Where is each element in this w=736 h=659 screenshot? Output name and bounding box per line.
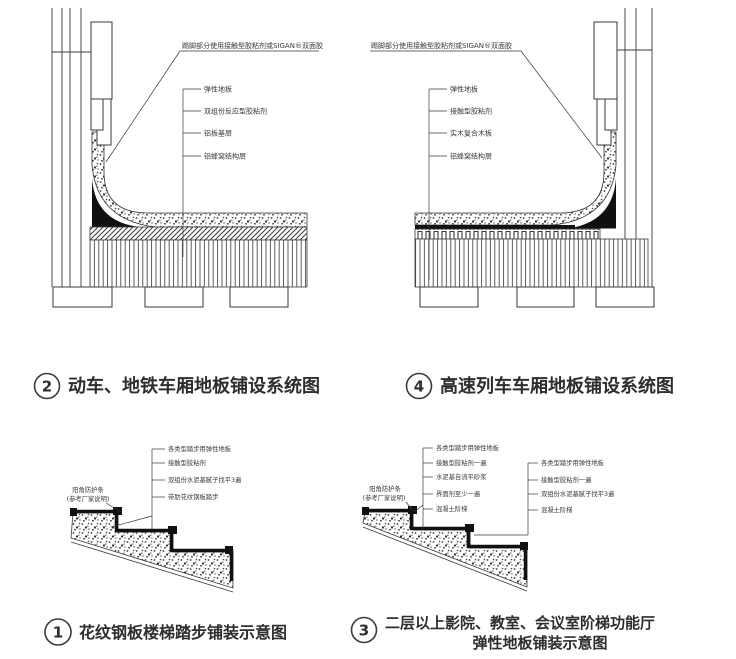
skirting-board-upper	[594, 22, 617, 99]
support-blocks	[53, 287, 288, 307]
nosing-cap	[520, 542, 528, 550]
layer-label: 弹性地板	[204, 85, 232, 94]
wall-panel-lines	[52, 8, 91, 287]
metro-floor-system-diagram: 踢脚部分使用接触型胶粘剂或SIGAN®双面胶 弹性地板 双组份反应型胶粘剂 铝板…	[52, 8, 323, 307]
skirting-note: 踢脚部分使用接触型胶粘剂或SIGAN®双面胶	[371, 41, 512, 50]
nosing-cap	[225, 546, 233, 554]
skirting-board-lower-inner	[91, 99, 103, 130]
layer-label-leaders-left	[414, 448, 433, 529]
layer-label: 铝蜂窝结构层	[450, 152, 492, 161]
skirting-board-upper	[91, 22, 112, 99]
title-text-line2: 弹性地板铺装示意图	[472, 634, 607, 652]
layer-label: 双组份水泥基腻子找平3遍	[541, 489, 615, 498]
skirting-boards	[91, 22, 112, 145]
honeycomb-structure-layer	[90, 240, 307, 287]
layer-label: 混凝土阶梯	[436, 504, 467, 513]
support-block	[230, 287, 288, 307]
elastic-floor-cove-layer	[415, 132, 616, 225]
layer-label: 铝板基层	[204, 129, 232, 138]
layer-label: 各类型踏步用弹性地板	[168, 444, 232, 453]
title-number: 2	[42, 378, 52, 396]
support-blocks	[420, 287, 654, 307]
title-text: 动车、地铁车厢地板铺设系统图	[68, 375, 320, 397]
elastic-floor-cove-layer	[92, 132, 307, 227]
layer-label: 弹性地板	[450, 85, 478, 94]
title-text: 花纹钢板楼梯踏步铺装示意图	[79, 623, 287, 642]
support-block	[517, 287, 574, 307]
skirting-board-lower-inner	[605, 99, 617, 130]
support-block	[145, 287, 203, 307]
engineered-wood-layer	[415, 229, 600, 239]
diagram-1-title: 1 花纹钢板楼梯踏步铺装示意图	[45, 619, 287, 645]
layer-label: 水泥基自流平砂浆	[436, 472, 487, 481]
title-number: 4	[414, 378, 424, 396]
layer-label: 双组份水泥基腻子找平3遍	[168, 475, 242, 484]
title-number: 3	[359, 622, 369, 640]
hst-floor-system-diagram: 踢脚部分使用接触型胶粘剂或SIGAN®双面胶 弹性地板 接触型胶粘剂 实木复合木…	[370, 8, 654, 307]
corner-strip-note: (参考厂家说明)	[363, 493, 406, 502]
nosing-cap	[70, 508, 77, 516]
support-block	[420, 287, 478, 307]
corner-strip-note: (参考厂家说明)	[67, 494, 110, 503]
nosing-cap	[362, 507, 369, 515]
title-number: 1	[53, 624, 63, 642]
skirting-note-leader	[370, 51, 602, 158]
layer-label: 接触型胶粘剂	[168, 458, 206, 467]
layer-label: 各类型踏步用弹性地板	[436, 443, 500, 452]
skirting-note: 踢脚部分使用接触型胶粘剂或SIGAN®双面胶	[182, 41, 323, 50]
corner-strip-label: 阳角防护条	[72, 485, 104, 494]
concrete-stair-elastic-floor-diagram: 阳角防护条 (参考厂家说明) 各类型踏步用弹性地板 接触型胶粘剂一遍 水泥基自流…	[362, 443, 615, 591]
layer-label: 界面剂至少一遍	[436, 489, 481, 498]
layer-label: 混凝土阶梯	[541, 505, 572, 514]
aluminum-base-layer	[90, 227, 307, 240]
layer-label: 接触型胶粘剂一遍	[541, 475, 592, 484]
detail-drawings-svg: 踢脚部分使用接触型胶粘剂或SIGAN®双面胶 弹性地板 双组份反应型胶粘剂 铝板…	[0, 0, 736, 659]
diagram-2-title: 2 动车、地铁车厢地板铺设系统图	[35, 374, 321, 399]
corner-strip-label: 阳角防护条	[369, 484, 401, 493]
layer-label: 接触型胶粘剂	[450, 107, 492, 116]
skirting-boards	[594, 22, 617, 145]
honeycomb-structure-layer	[415, 239, 648, 287]
layer-label: 各类型踏步用弹性地板	[541, 458, 605, 467]
diagram-3-title: 3 二层以上影院、教室、会议室阶梯功能厅 弹性地板铺装示意图	[352, 614, 656, 652]
layer-label: 双组份反应型胶粘剂	[204, 107, 267, 116]
layer-label: 铝蜂窝结构层	[204, 152, 246, 161]
layer-label: 实木复合木板	[450, 129, 492, 138]
support-block	[53, 287, 112, 307]
nosing-cap	[465, 524, 474, 532]
support-block	[596, 287, 654, 307]
title-text: 高速列车车厢地板铺设系统图	[440, 375, 674, 397]
contact-adhesive-layer	[415, 225, 575, 229]
skirting-note-leader	[106, 51, 319, 162]
layer-label: 接触型胶粘剂一遍	[436, 458, 487, 467]
construction-detail-sheet: 踢脚部分使用接触型胶粘剂或SIGAN®双面胶 弹性地板 双组份反应型胶粘剂 铝板…	[0, 0, 736, 659]
layer-label-leaders	[111, 449, 165, 529]
stair-concrete-body	[363, 512, 527, 587]
nosing-cap	[168, 526, 177, 534]
steel-stair-tread-diagram: 阳角防护条 (参考厂家说明) 各类型踏步用弹性地板 接触型胶粘剂 双组份水泥基腻…	[67, 444, 242, 592]
title-text-line1: 二层以上影院、教室、会议室阶梯功能厅	[385, 614, 655, 632]
layer-label: 带肋花纹钢板踏步	[168, 492, 218, 501]
diagram-4-title: 4 高速列车车厢地板铺设系统图	[407, 374, 675, 399]
